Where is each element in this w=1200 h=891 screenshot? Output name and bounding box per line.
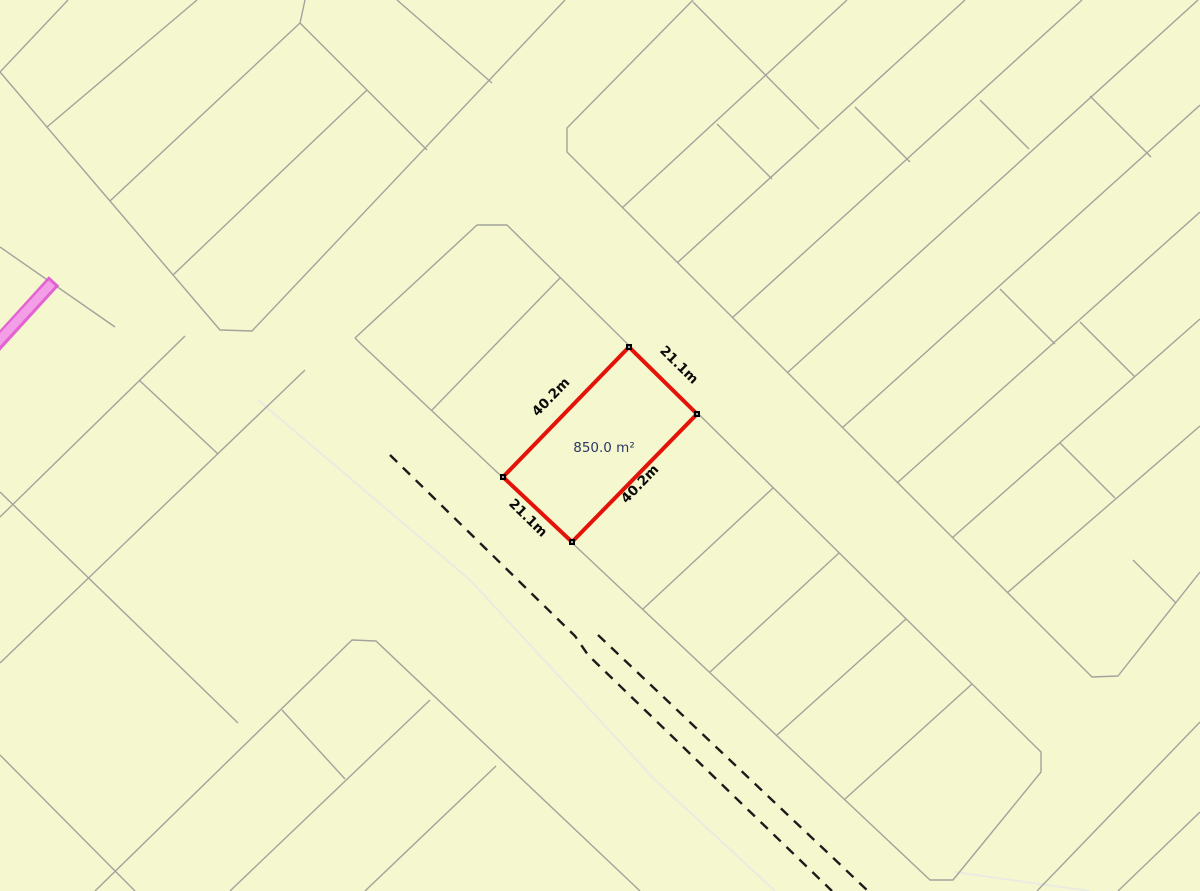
corner-marker-center <box>628 346 630 348</box>
corner-marker-center <box>571 541 573 543</box>
corner-marker-center <box>696 413 698 415</box>
map-viewport: 40.2m21.1m40.2m21.1m850.0 m² <box>0 0 1200 891</box>
corner-marker-center <box>502 476 504 478</box>
map-canvas[interactable]: 40.2m21.1m40.2m21.1m850.0 m² <box>0 0 1200 891</box>
parcel-area-label: 850.0 m² <box>573 440 635 456</box>
